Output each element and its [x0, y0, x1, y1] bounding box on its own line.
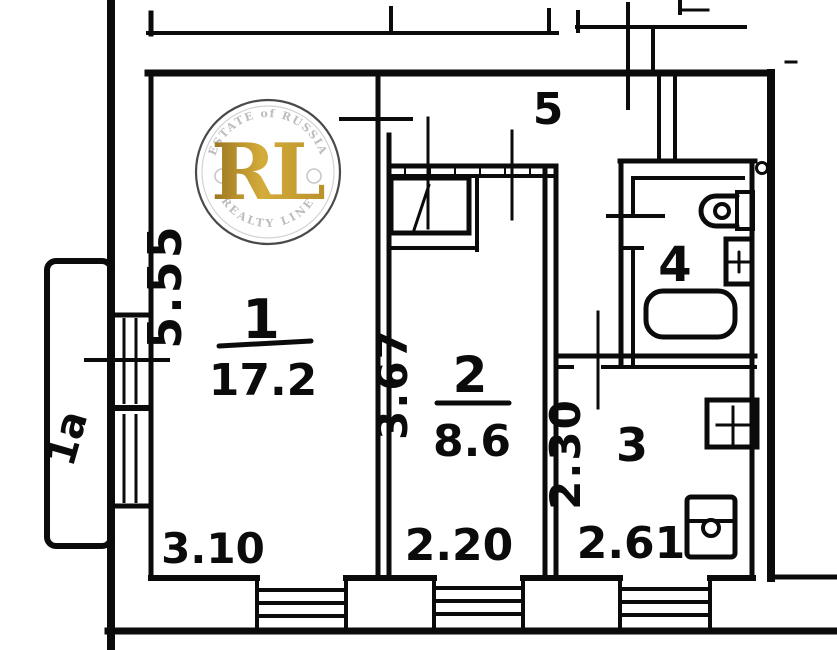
window-jambs: [434, 578, 523, 629]
room2-window-symbol: [434, 578, 523, 629]
kitchen-sink-symbol: [687, 497, 735, 557]
kitchen-number-label: 3: [616, 418, 648, 472]
balcony-window-glazing-2: [124, 414, 136, 503]
room2-height-dim: 3.67: [368, 328, 417, 440]
room2-closet-symbol: [391, 176, 477, 250]
washbasin-symbol: [726, 239, 752, 284]
bathtub-symbol: [646, 291, 735, 337]
window-glazing: [434, 588, 523, 614]
room1-window-symbol: [257, 578, 346, 629]
toilet-drain: [715, 204, 729, 218]
room1-area-label: 17.2: [209, 355, 318, 406]
kitchen-window-symbol: [620, 578, 710, 628]
room2-width-dim: 2.20: [405, 520, 514, 571]
vent-circle: [757, 163, 768, 174]
room2-area-label: 8.6: [433, 416, 511, 467]
room2-number-label: 2: [453, 346, 488, 404]
room1-height-dim: 5.55: [138, 223, 192, 349]
kitchen-width-dim: 2.61: [577, 518, 686, 569]
toilet-bowl: [701, 196, 737, 226]
room1-width-dim: 3.10: [161, 524, 265, 573]
floor-plan-page: 5.55 1 17.2 3.10 3.67 2 8.6 2.20 2.30 3 …: [0, 0, 837, 650]
toilet-symbol: [701, 192, 753, 229]
hallway-number-label: 5: [533, 84, 564, 135]
stamp-monogram: RL: [211, 127, 325, 218]
kitchen-height-dim: 2.30: [541, 398, 590, 510]
balcony-outline: [47, 261, 111, 546]
window-glazing: [257, 590, 346, 616]
agency-watermark: ESTATE of RUSSIA REALTY LINE RL: [195, 99, 341, 245]
room1-number-underline: [219, 341, 311, 346]
kitchen-sink-drain: [703, 520, 719, 536]
washbasin-cross: [729, 252, 749, 272]
floor-plan-canvas: 5.55 1 17.2 3.10 3.67 2 8.6 2.20 2.30 3 …: [0, 0, 837, 650]
bathroom-number-label: 4: [658, 237, 691, 293]
window-glazing: [620, 589, 710, 615]
bathtub-outline: [646, 291, 735, 337]
bathroom-walls: [608, 76, 768, 366]
